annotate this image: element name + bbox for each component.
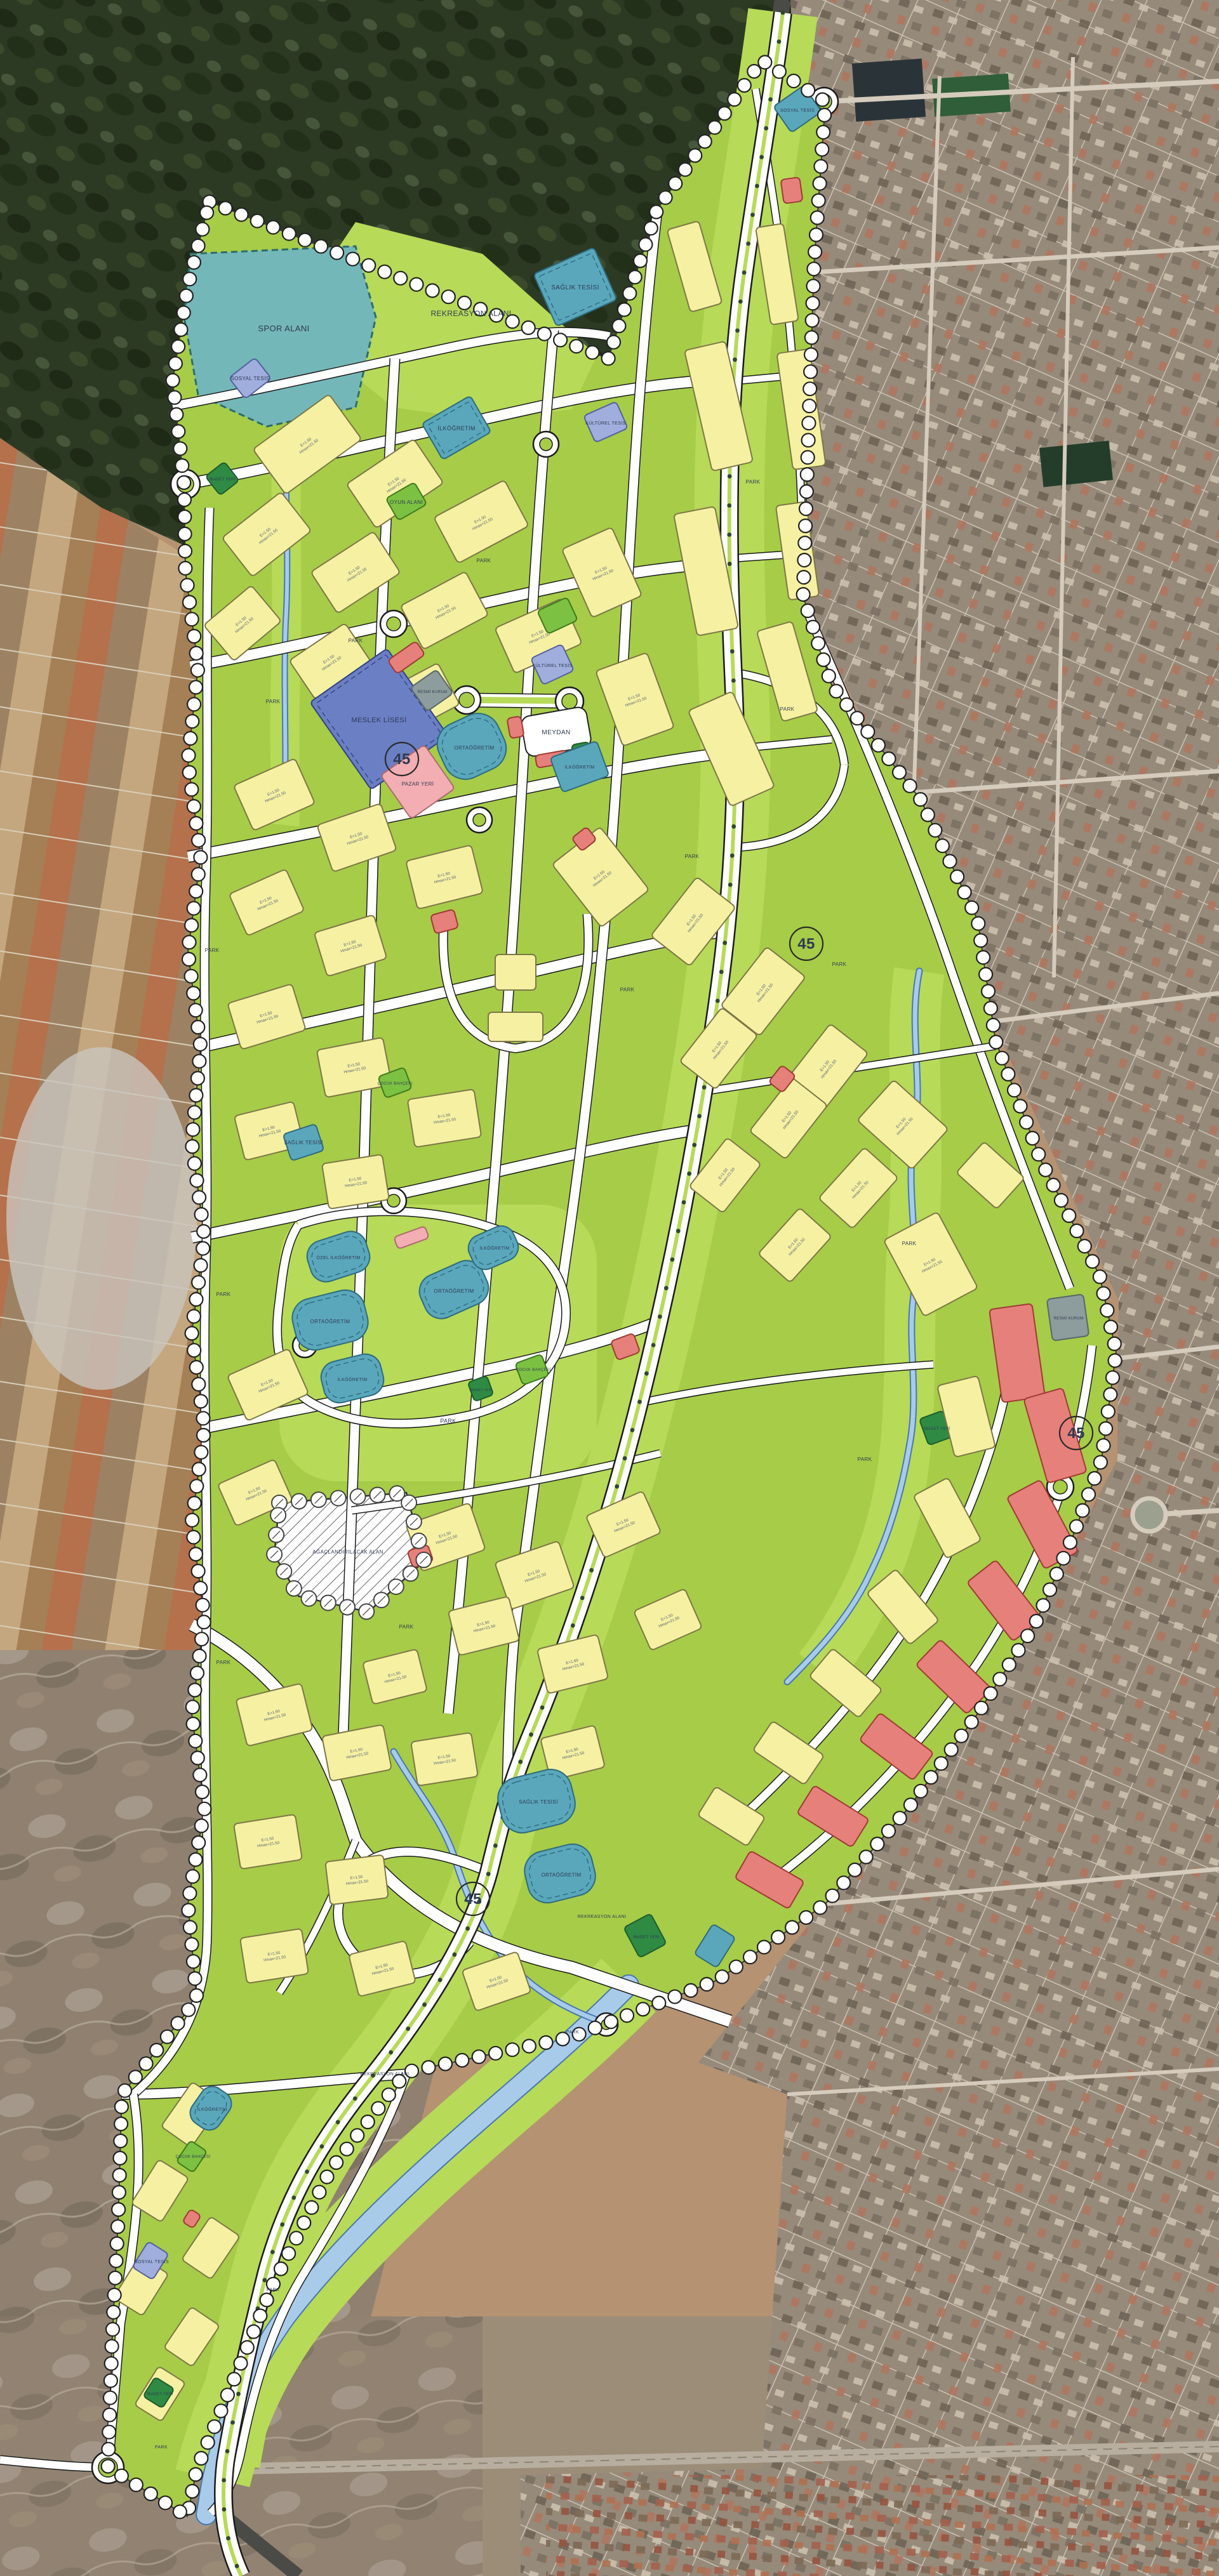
boundary-tree [1102, 1405, 1115, 1418]
median-tree [529, 1733, 533, 1737]
master-plan-screenshot: E=1.50Hmax=21.50E=1.50Hmax=21.50E=1.50Hm… [0, 0, 1219, 2576]
boundary-tree [189, 1547, 203, 1561]
median-tree [580, 1596, 585, 1601]
median-tree [733, 357, 737, 362]
zone-label: PARK [349, 638, 363, 644]
boundary-tree [1106, 1371, 1119, 1384]
boundary-tree [602, 352, 615, 365]
boundary-tree [114, 2117, 128, 2130]
boundary-tree [1039, 1163, 1052, 1177]
boundary-tree [669, 177, 682, 190]
boundary-tree [589, 2021, 602, 2035]
boundary-tree [984, 1687, 997, 1700]
boundary-tree [522, 321, 535, 334]
boundary-tree [197, 1615, 211, 1628]
boundary-tree [168, 391, 181, 404]
boundary-tree [1082, 1488, 1095, 1501]
boundary-tree [1062, 1209, 1076, 1222]
boundary-tree [241, 2341, 254, 2354]
boundary-tree [298, 234, 312, 247]
median-tree [291, 2196, 296, 2200]
boundary-tree [187, 1955, 200, 1968]
roundabout-island [387, 617, 401, 631]
boundary-tree [274, 2262, 288, 2276]
zone-label: SAĞLIK TESİSİ [284, 1140, 323, 1146]
boundary-tree [114, 2151, 127, 2165]
boundary-tree [187, 1531, 200, 1544]
boundary-tree [197, 1411, 210, 1425]
boundary-tree [1043, 1583, 1056, 1596]
median-tree [746, 242, 750, 246]
median-tree [716, 999, 720, 1003]
boundary-tree [729, 1960, 743, 1974]
boundary-tree [186, 1700, 199, 1714]
boundary-tree [192, 1378, 205, 1391]
boundary-tree [758, 56, 771, 69]
boundary-tree [195, 1632, 208, 1646]
boundary-tree [194, 1038, 207, 1051]
boundary-tree [185, 783, 198, 796]
boundary-tree [771, 1931, 785, 1944]
zone-label: MEYDAN [542, 729, 570, 736]
median-tree [723, 941, 727, 945]
zone-label: KÜLTÜREL TESİS [532, 663, 572, 668]
median-tree [702, 1085, 707, 1090]
roundabout-island [540, 438, 552, 451]
zone-label: PARK [267, 2288, 279, 2292]
boundary-tree [197, 1802, 211, 1816]
boundary-tree [187, 630, 201, 643]
zone-label: PARK [216, 1660, 231, 1665]
boundary-tree [1021, 1629, 1034, 1642]
boundary-tree [187, 902, 201, 915]
median-tree [728, 562, 732, 566]
boundary-tree [190, 1989, 203, 2002]
boundary-tree [976, 951, 990, 964]
boundary-tree [175, 459, 189, 472]
boundary-tree [192, 239, 205, 253]
boundary-tree [187, 1717, 200, 1731]
boundary-tree [787, 74, 801, 88]
boundary-tree [109, 2254, 123, 2268]
residential-block-shape [488, 1012, 543, 1041]
boundary-tree [743, 1950, 757, 1964]
boundary-tree [1108, 1337, 1121, 1351]
median-tree [781, 11, 785, 15]
residential-block: E=1.50Hmax=21.50 [325, 1855, 389, 1905]
boundary-tree [194, 1582, 207, 1595]
boundary-tree [807, 279, 820, 293]
residential-block: E=1.50Hmax=21.50 [322, 1154, 389, 1209]
median-tree [518, 1760, 523, 1764]
boundary-tree [943, 855, 957, 868]
boundary-tree [189, 1088, 203, 1102]
boundary-tree [187, 987, 200, 1000]
boundary-tree [634, 254, 647, 267]
zone-label: ORTAÖĞRETİM [541, 1872, 581, 1878]
boundary-tree [996, 1052, 1009, 1065]
boundary-tree [247, 2325, 260, 2339]
boundary-tree [170, 408, 183, 421]
boundary-tree [1026, 1132, 1039, 1145]
boundary-tree [180, 289, 193, 303]
boundary-tree [392, 2075, 406, 2088]
boundary-tree [804, 365, 817, 378]
boundary-tree [171, 2017, 185, 2030]
zone-label: İBADET YERİ [209, 477, 236, 482]
boundary-tree [192, 1191, 206, 1204]
zone-label: İBADET YERİ [924, 1427, 950, 1431]
median-tree [262, 2278, 267, 2282]
boundary-tree [1001, 1067, 1015, 1081]
median-tree [305, 2170, 309, 2174]
boundary-tree [979, 968, 992, 981]
boundary-tree [166, 374, 180, 387]
boundary-tree [426, 284, 439, 297]
boundary-tree [936, 839, 949, 852]
boundary-tree [186, 1123, 199, 1136]
boundary-tree [305, 2201, 318, 2214]
residential-block-shape [495, 954, 536, 990]
boundary-tree [371, 2102, 385, 2115]
junction-badge-number: 45 [393, 751, 411, 768]
boundary-tree [971, 917, 985, 930]
boundary-tree [950, 870, 964, 883]
residential-block: E=1.50Hmax=21.50 [408, 1089, 482, 1147]
boundary-tree [189, 1003, 203, 1017]
median-tree [226, 2536, 230, 2540]
boundary-tree [111, 2220, 124, 2233]
boundary-tree [945, 1743, 958, 1756]
median-tree [222, 2507, 227, 2512]
median-tree [764, 126, 768, 131]
median-tree [731, 678, 736, 683]
median-tree [651, 1343, 656, 1347]
boundary-tree [196, 1242, 210, 1255]
median-tree [623, 1456, 627, 1461]
median-tree [230, 2421, 235, 2425]
median-tree [637, 1400, 642, 1404]
boundary-tree [194, 1446, 208, 1459]
boundary-tree [188, 1496, 201, 1510]
boundary-tree [115, 2469, 128, 2483]
boundary-tree [107, 2306, 120, 2319]
boundary-tree [586, 346, 599, 359]
residential-block-shape [411, 1733, 478, 1786]
boundary-tree [442, 290, 455, 303]
boundary-tree [1076, 1504, 1089, 1517]
boundary-tree [191, 1020, 204, 1034]
boundary-tree [312, 2186, 326, 2199]
roundabout-island [473, 814, 486, 826]
boundary-tree [818, 109, 831, 122]
boundary-tree [283, 227, 296, 241]
commercial-block-shape [507, 716, 524, 738]
boundary-tree [171, 425, 185, 438]
boundary-tree [227, 2372, 241, 2386]
boundary-tree [826, 1889, 839, 1903]
zone-label: SOSYAL TESİS [230, 376, 269, 381]
commercial-block [781, 177, 803, 204]
boundary-tree [187, 1344, 201, 1357]
boundary-tree [129, 2070, 142, 2084]
boundary-tree [652, 1997, 665, 2010]
zone-label: İLKÖĞRETİM [564, 764, 594, 770]
boundary-tree [378, 265, 391, 279]
median-tree [738, 300, 743, 304]
boundary-tree [219, 202, 232, 215]
boundary-tree [197, 1429, 210, 1442]
boundary-tree [975, 1701, 988, 1715]
median-tree [687, 1172, 691, 1176]
residential-block-shape [408, 1089, 482, 1147]
boundary-tree [639, 238, 652, 251]
boundary-tree [185, 919, 198, 932]
boundary-tree [773, 65, 786, 78]
zone-label: İLKÖĞRETİM [479, 1245, 509, 1251]
boundary-tree [803, 382, 816, 395]
boundary-tree [193, 1768, 206, 1781]
boundary-tree [185, 2485, 199, 2498]
boundary-tree [1100, 1304, 1114, 1317]
boundary-tree [182, 2003, 195, 2016]
boundary-tree [118, 2084, 131, 2097]
median-tree [731, 824, 736, 829]
boundary-tree [848, 1863, 862, 1877]
zone-label: ÇOCUK BAHÇESİ [516, 1368, 551, 1372]
zone-label: PARK [477, 558, 491, 564]
sat-haze-patch [6, 1047, 197, 1390]
boundary-tree [757, 1941, 771, 1954]
boundary-tree [108, 2289, 121, 2302]
median-tree [615, 1484, 619, 1489]
boundary-tree [196, 223, 209, 236]
boundary-tree [860, 1851, 873, 1864]
boundary-tree [472, 2050, 486, 2063]
zone-label: REKREASYON ALANI [361, 2072, 410, 2077]
median-tree [759, 155, 764, 159]
boundary-tree [190, 1361, 203, 1374]
boundary-tree [193, 1649, 206, 1663]
zone-label: PARK [902, 1241, 917, 1246]
boundary-tree [982, 985, 995, 998]
zone-label: REKREASYON ALANI [430, 309, 511, 318]
boundary-tree [636, 2002, 649, 2016]
zone-label: PARK [266, 699, 281, 704]
roundabout-island [459, 692, 474, 708]
boundary-tree [192, 1276, 205, 1289]
master-plan-map: E=1.50Hmax=21.50E=1.50Hmax=21.50E=1.50Hm… [0, 0, 1219, 2576]
median-tree [697, 1114, 702, 1118]
median-tree [540, 1705, 545, 1710]
boundary-tree [904, 1799, 917, 1812]
boundary-tree [1103, 1388, 1117, 1401]
median-tree [630, 1428, 635, 1432]
median-tree [389, 2051, 393, 2055]
boundary-tree [183, 1887, 196, 1900]
zone-label: İBADET YERİ [147, 2392, 173, 2396]
boundary-tree [192, 868, 205, 881]
boundary-tree [993, 1672, 1006, 1686]
zone-label: PARK [780, 706, 795, 712]
boundary-tree [802, 416, 815, 430]
boundary-tree [189, 1853, 203, 1866]
boundary-tree [330, 246, 343, 260]
boundary-tree [314, 240, 328, 253]
boundary-tree [870, 1837, 884, 1851]
median-tree [236, 2392, 241, 2396]
median-tree [777, 39, 782, 44]
boundary-tree [506, 2043, 519, 2056]
boundary-tree [194, 850, 207, 864]
boundary-tree [804, 348, 818, 361]
boundary-tree [186, 1870, 199, 1883]
median-tree [742, 270, 747, 275]
boundary-tree [192, 1463, 206, 1476]
boundary-tree [806, 314, 819, 327]
zone-label: PARK [685, 854, 700, 859]
zone-label: SOSYAL TESİS [780, 107, 815, 113]
boundary-tree [644, 221, 658, 235]
median-tree [453, 1952, 457, 1957]
boundary-tree [350, 2129, 364, 2142]
boundary-tree [840, 698, 853, 711]
median-tree [727, 503, 731, 508]
boundary-tree [185, 970, 198, 983]
median-tree [353, 2096, 357, 2101]
boundary-tree [185, 1514, 199, 1527]
boundary-tree [185, 1326, 199, 1340]
boundary-tree [106, 2323, 119, 2336]
boundary-tree [984, 1001, 997, 1015]
boundary-tree [200, 206, 213, 220]
boundary-tree [187, 1310, 201, 1323]
boundary-tree [801, 84, 815, 97]
boundary-tree [194, 1395, 208, 1408]
boundary-tree [191, 1752, 204, 1765]
boundary-tree [882, 1825, 895, 1838]
boundary-tree [197, 1225, 210, 1238]
median-tree [320, 2144, 324, 2149]
boundary-tree [330, 2156, 343, 2169]
boundary-tree [321, 2170, 334, 2184]
zone-label: İLKÖĞRETİM [337, 1377, 367, 1382]
boundary-tree [489, 2047, 502, 2060]
boundary-tree [815, 143, 829, 156]
boundary-tree [188, 1106, 201, 1119]
median-tree [589, 1568, 594, 1573]
boundary-tree [570, 340, 583, 353]
boundary-tree [806, 621, 820, 634]
boundary-tree [716, 1970, 729, 1983]
boundary-tree [554, 333, 567, 347]
boundary-tree [1097, 1287, 1110, 1300]
boundary-tree [112, 2203, 125, 2216]
boundary-tree [1020, 1116, 1033, 1129]
boundary-tree [161, 2030, 174, 2044]
boundary-tree [797, 553, 811, 567]
residential-block: E=1.50Hmax=21.50 [240, 1929, 309, 1983]
boundary-tree [183, 596, 196, 609]
boundary-tree [235, 208, 248, 221]
boundary-tree [105, 2357, 118, 2370]
median-tree [664, 1286, 669, 1290]
boundary-tree [539, 2036, 552, 2049]
boundary-tree [178, 493, 191, 506]
boundary-tree [1056, 1552, 1070, 1565]
boundary-tree [177, 306, 190, 319]
sat-villa-cluster [546, 2475, 1219, 2576]
boundary-tree [185, 1938, 199, 1951]
median-tree [270, 2250, 275, 2254]
zone-label: REKREASYON ALANI [578, 1915, 627, 1919]
boundary-tree [813, 177, 827, 190]
boundary-tree [150, 2044, 163, 2057]
median-tree [336, 2120, 340, 2124]
boundary-tree [191, 1072, 204, 1085]
boundary-tree [807, 262, 820, 275]
boundary-tree [659, 191, 672, 204]
boundary-tree [805, 331, 818, 344]
boundary-tree [1008, 1083, 1021, 1097]
boundary-tree [183, 1920, 197, 1934]
boundary-tree [700, 1978, 714, 1991]
boundary-tree [394, 272, 407, 285]
boundary-tree [728, 93, 741, 106]
boundary-tree [798, 536, 811, 550]
boundary-tree [144, 2487, 157, 2500]
median-tree [755, 184, 759, 188]
boundary-tree [189, 680, 203, 694]
zone-label: ÖZEL İLKÖĞRETİM [316, 1255, 360, 1260]
boundary-tree [140, 2057, 153, 2070]
boundary-tree [523, 2040, 536, 2053]
boundary-tree [861, 725, 874, 739]
zone-label: PARK [832, 961, 847, 967]
boundary-tree [1070, 1224, 1084, 1238]
boundary-tree [837, 1876, 850, 1889]
boundary-tree [182, 749, 196, 762]
boundary-tree [215, 2404, 228, 2417]
boundary-tree [629, 270, 642, 284]
boundary-tree [958, 885, 971, 899]
median-tree [225, 2449, 230, 2454]
zone-label: İBADET YERİ [470, 1388, 492, 1392]
boundary-tree [189, 885, 203, 898]
boundary-tree [105, 2340, 119, 2353]
boundary-tree [187, 800, 201, 813]
boundary-tree [1093, 1270, 1107, 1283]
boundary-tree [103, 2408, 116, 2422]
boundary-tree [1032, 1147, 1045, 1161]
boundary-tree [173, 2505, 187, 2518]
zone-label: PARK [440, 1418, 456, 1424]
zone-label: PARK [566, 2030, 579, 2035]
boundary-tree [114, 2134, 127, 2148]
boundary-tree [192, 1564, 205, 1578]
boundary-tree [797, 588, 810, 601]
zone-label: RESMİ KURUM [417, 690, 447, 694]
roundabout-island [562, 694, 577, 709]
boundary-tree [340, 2143, 354, 2156]
boundary-tree [196, 1785, 209, 1799]
boundary-tree [177, 476, 190, 489]
zone-label: PARK [399, 1624, 414, 1630]
boundary-tree [185, 715, 199, 728]
boundary-tree [234, 2356, 248, 2370]
junction-badge-number: 45 [464, 1891, 482, 1908]
boundary-tree [169, 357, 182, 370]
